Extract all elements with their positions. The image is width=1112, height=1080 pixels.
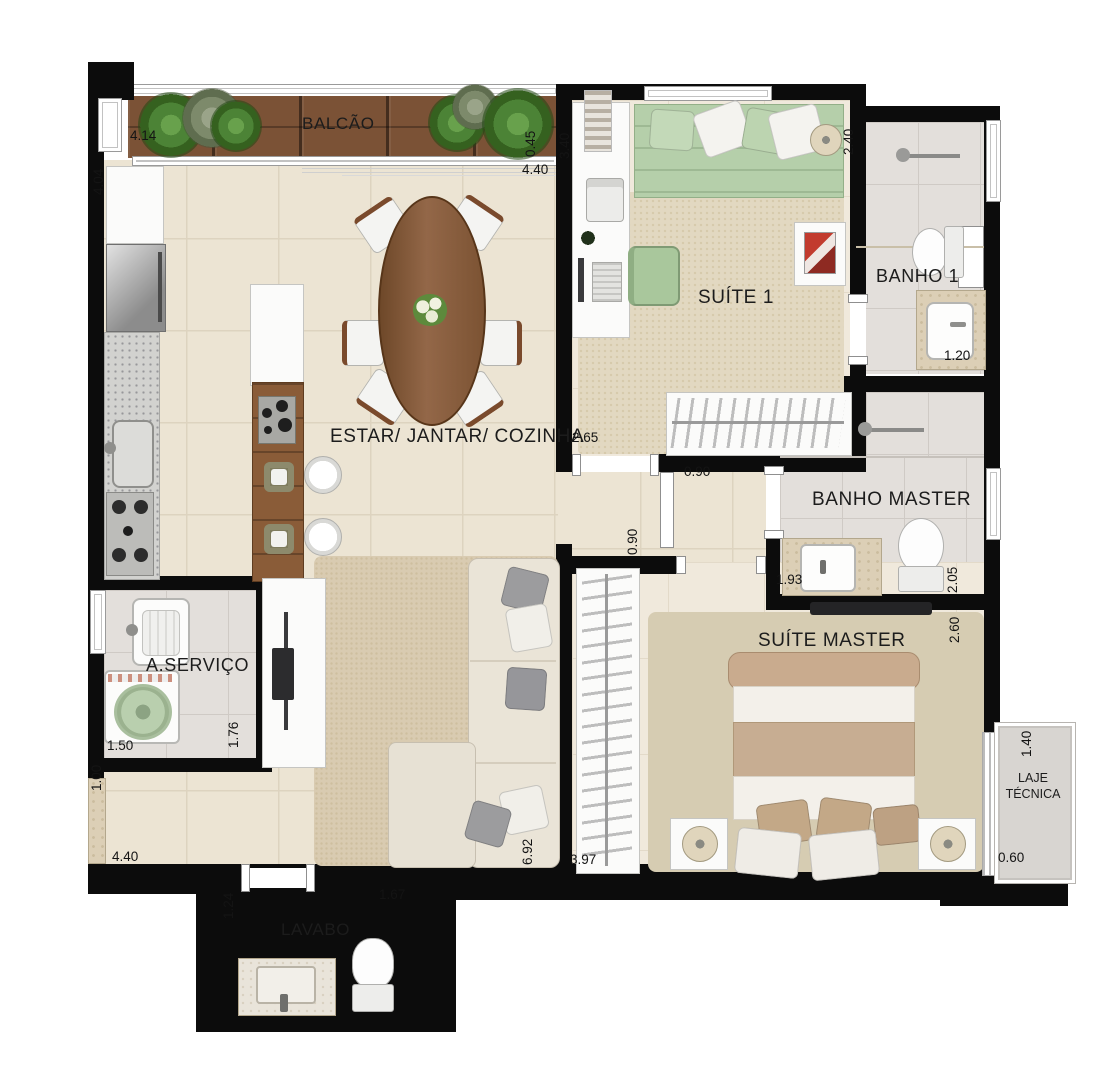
suite1-shelf-books [584, 90, 612, 152]
suite1-pillow-green-1 [649, 109, 696, 152]
dim-living-length: 6.92 [520, 839, 535, 865]
sofa-chaise [388, 742, 476, 868]
wall-right-mid [984, 382, 1000, 732]
stool-icon-1 [304, 456, 342, 494]
stove-burner-4 [134, 548, 148, 562]
stove-knob [123, 526, 133, 536]
window-aservico [90, 590, 106, 654]
dining-chair-4 [480, 320, 522, 366]
window-suite1 [644, 86, 772, 101]
kitchen-sink-icon [112, 420, 154, 488]
dim-balcony-depth: 0.45 [523, 131, 538, 157]
master-bed-duvet [733, 722, 915, 778]
aservico-label: A.SERVIÇO [146, 655, 249, 676]
dim-suite1-door-wall: 2.65 [572, 430, 598, 445]
dim-living-opening: 1.00 [89, 765, 104, 791]
door-lavabo-jamb-right [306, 864, 315, 892]
banho-master-shower-icon [866, 428, 924, 432]
wall-banho1-top [850, 106, 1000, 122]
balcony-plant-icon-4 [482, 88, 554, 160]
window-banho-master [986, 468, 1001, 540]
door-banho1-jamb-top [848, 294, 868, 303]
island-cabinet [250, 284, 304, 386]
lavabo-toilet-tank [352, 984, 394, 1012]
dim-servico-depth: 1.76 [226, 722, 241, 748]
dim-servico-width: 1.50 [107, 738, 133, 753]
banho1-shower-icon [904, 154, 960, 158]
floor-plan: BALCÃO ESTAR/ JANTAR/ COZINHA SUÍTE 1 BA… [0, 0, 1112, 1080]
master-pillow-tan-3 [872, 804, 922, 847]
fridge-handle [158, 252, 162, 322]
monitor-icon [578, 258, 584, 302]
laje-label-line2: TÉCNICA [996, 786, 1070, 802]
door-lavabo-jamb-left [241, 864, 250, 892]
dim-hall-door: 0.90 [684, 464, 710, 479]
dim-banho-master-depth: 2.05 [945, 567, 960, 593]
keyboard-icon [592, 262, 622, 302]
magazine-icon [804, 232, 836, 274]
wall-bottom-left [88, 864, 200, 894]
cooktop-burner-3 [262, 408, 272, 418]
balcony-step-line [302, 168, 558, 173]
banho-master-shower-divider [780, 456, 984, 458]
laje-label: LAJE TÉCNICA [996, 770, 1070, 802]
desk-chair [628, 246, 680, 306]
sofa-seam-1 [470, 660, 556, 662]
hall-partition-wall [660, 472, 674, 548]
cooktop-burner-1 [276, 400, 288, 412]
suite1-lamp-icon [810, 124, 842, 156]
tv-icon [272, 648, 294, 700]
kitchen-cabinet [106, 166, 164, 244]
door-suite1-jamb-left [572, 454, 581, 476]
wall-aservico-bottom [88, 758, 272, 772]
suite1-label: SUÍTE 1 [698, 287, 774, 309]
dim-banho1-width: 1.20 [944, 348, 970, 363]
stove-burner-2 [134, 500, 148, 514]
dim-kitchen-length: 4.04 [91, 169, 106, 195]
balcony-sliding-door [132, 156, 558, 166]
printer-icon [586, 178, 624, 222]
banho-master-sink-icon [800, 544, 856, 592]
door-lavabo [246, 868, 308, 888]
door-suite1 [576, 456, 654, 472]
window-left-top [98, 98, 122, 152]
master-bed-headboard [728, 652, 920, 690]
nightstand-left-lamp-icon [682, 826, 718, 862]
dim-living-width-top: 4.40 [522, 162, 548, 177]
dim-laje-width: 0.60 [998, 850, 1024, 865]
washer-drum-icon [114, 684, 172, 740]
dim-banho-master-counter: 1.93 [776, 572, 802, 587]
sofa-pillow-gray-2 [505, 667, 548, 712]
door-banho-master-jamb-top [764, 466, 784, 475]
door-suite1-jamb-right [650, 454, 659, 476]
laundry-faucet-icon [126, 624, 138, 636]
door-suite-master-jamb-right [756, 556, 766, 574]
dim-balcony-length: 4.14 [130, 128, 156, 143]
suite1-closet-rod-icon [672, 421, 844, 424]
fridge-icon [106, 244, 166, 332]
dim-suite-master-width: 3.97 [570, 852, 596, 867]
dim-laje-depth: 1.40 [1019, 731, 1034, 757]
door-banho1 [850, 298, 866, 360]
lavabo-toilet-icon [352, 938, 394, 988]
door-suite-master-jamb-left [676, 556, 686, 574]
sofa-pillow-white-1 [504, 603, 553, 654]
placemat-2-plate [271, 531, 287, 547]
suite-master-tv-icon [810, 602, 932, 615]
dim-banho1-depth: 2.40 [841, 129, 856, 155]
master-pillow-white-1 [734, 827, 802, 879]
laje-label-line1: LAJE [996, 770, 1070, 786]
stool-icon-2 [304, 518, 342, 556]
banho-master-floor [866, 392, 984, 458]
banho1-faucet-icon [950, 322, 966, 327]
master-pillow-white-2 [808, 829, 880, 882]
cooktop-burner-4 [264, 426, 272, 434]
door-banho1-jamb-bottom [848, 356, 868, 365]
laundry-tank-basin [142, 610, 180, 656]
desk-plant-icon [580, 230, 596, 246]
banho-master-label: BANHO MASTER [812, 489, 971, 511]
suite-master-label: SUÍTE MASTER [758, 630, 906, 652]
dim-suite-master-depth: 2.60 [947, 617, 962, 643]
door-banho-master-jamb-bottom [764, 530, 784, 539]
dim-living-width-bottom: 4.40 [112, 849, 138, 864]
banho-master-faucet-icon [820, 560, 826, 574]
dim-lavabo-width: 1.24 [221, 893, 236, 919]
banho-master-shower-head [858, 422, 872, 436]
cooktop-burner-2 [278, 418, 292, 432]
dim-suite1-width: 3.40 [557, 133, 572, 159]
lavabo-label: LAVABO [281, 920, 350, 940]
door-banho-master [766, 470, 780, 530]
estar-label: ESTAR/ JANTAR/ COZINHA [330, 426, 584, 448]
lavabo-faucet-icon [280, 994, 288, 1012]
balcao-label: BALCÃO [302, 114, 375, 134]
stove-burner-3 [112, 548, 126, 562]
banho1-shower-head [896, 148, 910, 162]
dim-lavabo-length: 1.67 [379, 887, 405, 902]
suite-master-closet-rod-icon [605, 574, 608, 866]
flowers-icon [412, 294, 448, 326]
banho-master-toilet-tank [898, 566, 944, 592]
stove-burner-1 [112, 500, 126, 514]
master-bed-sheet-1 [733, 686, 915, 724]
kitchen-faucet-icon [104, 442, 116, 454]
placemat-1-plate [271, 469, 287, 485]
balcony-plant-icon-2 [210, 100, 262, 152]
window-banho1 [986, 120, 1001, 202]
wall-topleft-block [88, 62, 134, 100]
nightstand-right-lamp-icon [930, 826, 966, 862]
sofa-seam-2 [470, 762, 556, 764]
banho1-label: BANHO 1 [876, 266, 959, 287]
dim-hall-width: 0.90 [625, 529, 640, 555]
